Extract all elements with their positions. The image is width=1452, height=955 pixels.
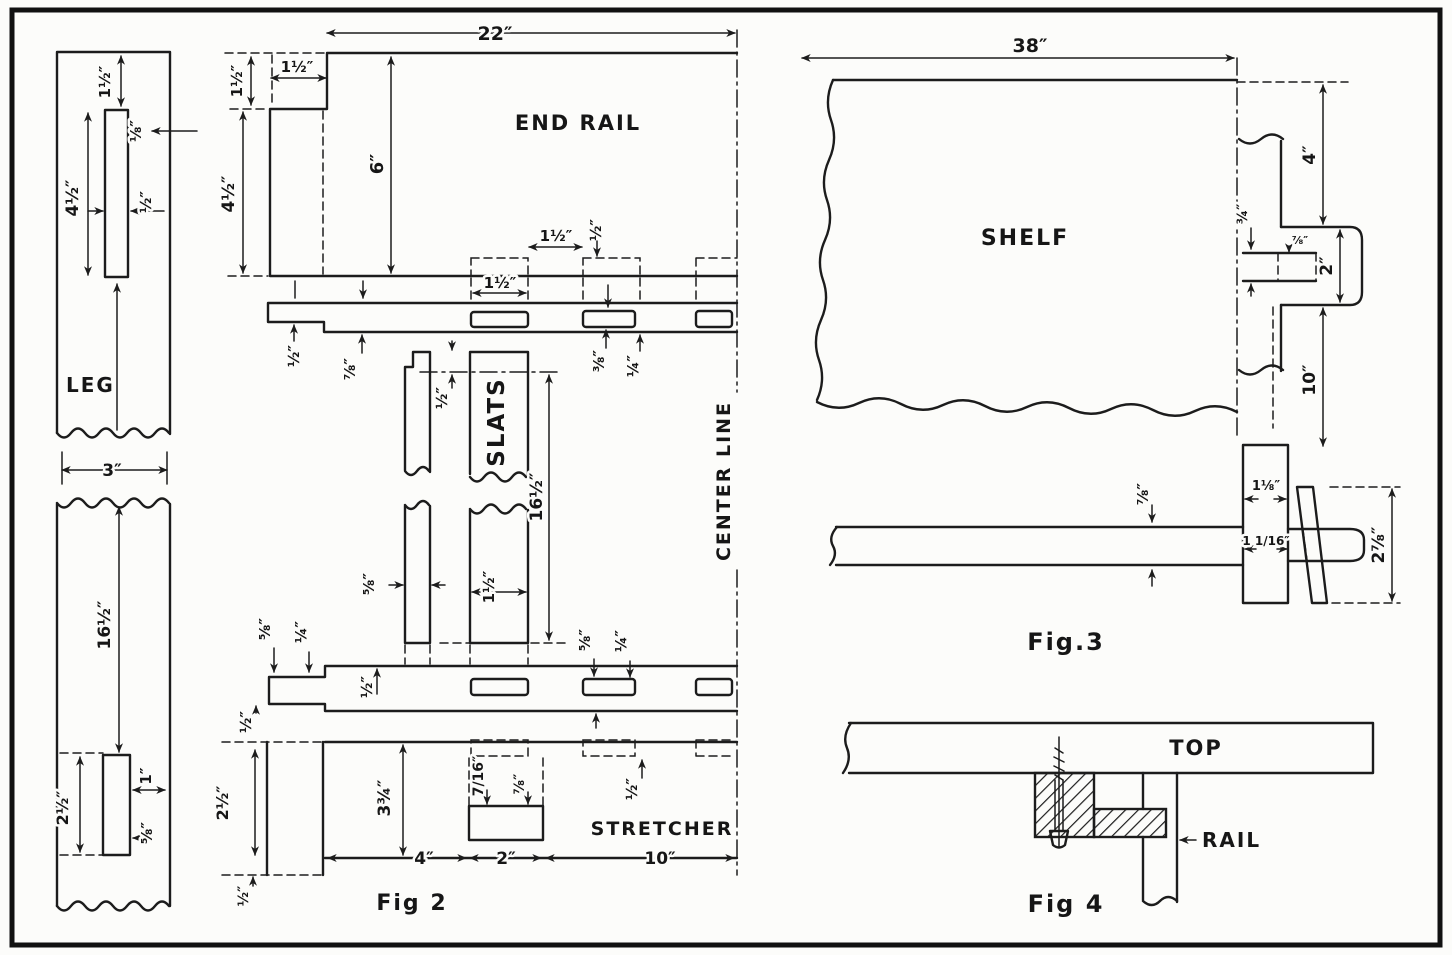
dim-leg-mortise-length-upper: 4½″ [63,179,83,216]
fig3-caption: Fig.3 [1027,628,1105,656]
dim-detail-tenon-depth: 2⅞″ [1369,526,1389,563]
dim-slot-depth-lower: ⅝″ [576,629,594,652]
dim-end-rail-height: 6″ [367,154,388,175]
dim-rail-thickness: ⅞″ [341,358,359,381]
dim-slat-length: 16½″ [527,472,547,521]
dim-stretcher-bottom-offset: ½″ [236,886,252,907]
dim-slot-inset-lower: ¼″ [612,630,630,653]
dim-detail-leg-a: 1⅛″ [1252,479,1281,494]
dim-stretcher-height: 3¾″ [375,779,395,816]
dim-shelf-top-gap: 4″ [1300,145,1320,165]
rail-slot [471,679,528,695]
technical-drawing: 1½″ ⅛″ 4½″ ½″ LEG 3″ 16½″ 2½″ 1″ ⅝″ 22″ [0,0,1452,955]
dim-leg-mortise-width-upper: ½″ [137,191,155,214]
dim-slat-narrow-width: ⅝″ [360,573,378,596]
dim-leg-edge-distance: 1″ [137,767,155,784]
dim-leg-mortise-width-lower: ⅝″ [138,822,156,845]
fig2-slats-view: SLATS ½″ 16½″ ⅝″ 1½″ [360,341,570,664]
dim-tenon-inset: ¼″ [292,621,310,644]
center-line: CENTER LINE [713,30,737,875]
shelf-label: SHELF [981,226,1069,251]
cleat-tongue-hatched [1094,809,1166,837]
fig2-end-rail-view: 22″ 1½″ 1½″ 4½″ 6″ END RAIL 1½″ ½″ [219,23,737,302]
dim-end-rail-length: 22″ [478,23,513,45]
rail-slot [583,311,635,327]
cleat-block-hatched [1035,773,1094,837]
rail-slot [696,679,732,695]
fig2-leg-upper-view: 1½″ ⅛″ 4½″ ½″ LEG [57,52,197,438]
center-line-label: CENTER LINE [713,401,735,561]
tenon-dashed [583,258,640,276]
rail-label: RAIL [1202,828,1261,852]
top-label: TOP [1169,736,1223,760]
dim-stretcher-10: 10″ [644,849,676,869]
stretcher-tenon-block [469,806,543,840]
fig4-caption: Fig 4 [1028,890,1105,918]
dim-shelf-width: 38″ [1013,35,1048,57]
dim-slot-width: 1½″ [484,274,517,292]
leg-cross-section [1243,445,1288,603]
dim-rail-edge-half: ½″ [285,345,303,368]
wedge-key [1297,487,1327,603]
fig2-caption: Fig 2 [376,891,447,916]
dim-stretcher-4: 4″ [414,849,434,869]
dim-stretcher-2: 2″ [496,849,516,869]
broken-edge [57,429,169,438]
dim-inner-half: ½″ [358,676,376,699]
leg-label: LEG [66,373,115,397]
dim-leg-mortise-length-lower: 2½″ [53,791,72,826]
dim-stretcher-leg-mortise: 2½″ [213,786,232,821]
dim-leg-mortise-top-offset: 1½″ [96,65,114,98]
fig2-lower-rail-top-view: ⅝″ ¼″ ½″ ½″ ⅝″ ¼″ ½″ [237,618,737,801]
dim-below-half: ½″ [623,778,641,801]
dim-slot-offset: ½″ [587,219,605,242]
dim-end-r ail-shoulder-height: 4½″ [219,175,239,212]
rail-slot [471,312,528,327]
dim-detail-rail-thickness: ⅞″ [1134,483,1152,506]
dim-slot-depth: ⅜″ [590,350,608,373]
end-rail-label: END RAIL [515,111,641,135]
woodworking-plan-page: 1½″ ⅛″ 4½″ ½″ LEG 3″ 16½″ 2½″ 1″ ⅝″ 22″ [0,0,1452,955]
leg-mortise-lower [103,755,130,855]
dim-detail-leg-b: 1 1/16″ [1242,534,1290,548]
rail-slot [583,679,635,695]
fig2-leg-lower-view: 3″ 16½″ 2½″ 1″ ⅝″ [53,452,170,911]
fig3-shelf-view: 38″ SHELF ¾″ ⅞″ 4″ 2″ 10″ [802,35,1362,446]
dim-slot-gap: 1½″ [540,227,573,245]
fig2-stretcher-view: 2½″ 3¾″ 7/16″ ⅞″ 4″ 2″ 10″ ½″ STRETCHER … [213,742,737,916]
fig2-upper-rail-top-view: 1½″ ½″ ⅞″ ⅜″ ¼″ [268,274,737,380]
dim-leg-length: 16½″ [95,600,115,649]
dim-end-rail-tenon-width: 1½″ [281,58,314,76]
slats-label: SLATS [484,377,510,467]
dim-slat-wide-width: 1½″ [480,570,498,603]
dim-shelf-leg-thickness: ⅞″ [1292,234,1308,247]
dim-shelf-bottom-gap: 10″ [1300,364,1320,396]
fig4-top-rail-detail: TOP RAIL Fig 4 [843,723,1373,918]
leg-mortise-upper [105,110,128,277]
fig3-tenon-detail: 2⅞″ ⅞″ 1⅛″ 1 1/16″ Fig.3 [830,445,1400,656]
dim-stretcher-tenon-a: 7/16″ [471,756,487,797]
dim-slot-inset: ¼″ [624,355,642,378]
through-tenon [1288,529,1364,561]
dim-end-rail-tenon-height: 1½″ [228,64,246,97]
dim-slat-top-offset: ½″ [433,387,451,410]
dim-leg-mortise-side-offset: ⅛″ [127,120,145,143]
stretcher-label: STRETCHER [591,818,734,840]
dim-left-half: ½″ [237,711,255,734]
rail-slot [696,311,732,327]
dim-stretcher-tenon-b: ⅞″ [512,774,528,795]
dim-shelf-notch-depth: ¾″ [1235,204,1251,225]
dim-leg-width: 3″ [102,461,122,481]
dim-tenon-depth: ⅝″ [256,618,274,641]
dim-shelf-tab-height: 2″ [1317,256,1337,276]
